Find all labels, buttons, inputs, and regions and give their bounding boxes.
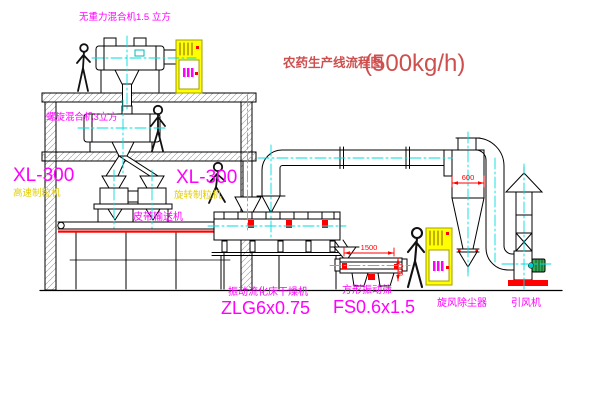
indicator-light (446, 232, 449, 235)
induced-draft-fan (508, 251, 548, 286)
floor-slab-top (42, 93, 256, 102)
mixer-inlet-port (134, 38, 146, 46)
vibration-damper (322, 220, 328, 228)
indicator-light (195, 72, 198, 75)
label-granulator-right-model: XL-300 (176, 167, 237, 188)
dim-cyclone-600: 600 (462, 173, 475, 182)
process-flow-diagram: 无重力混合机1.5 立方 农药生产线流程图 (500kg/h) 螺旋混合机3立方… (0, 0, 600, 403)
label-fan: 引风机 (511, 296, 541, 309)
label-sieve-model: FS0.6x1.5 (333, 297, 415, 317)
fluid-bed-dryer (212, 212, 342, 289)
sieve-vibrator (342, 263, 347, 269)
label-dryer-model: ZLG6x0.75 (221, 298, 310, 318)
sieve-discharge (368, 274, 375, 280)
worker-4 (408, 228, 424, 287)
control-cabinet-ground (426, 228, 452, 285)
label-mid-mixer: 螺旋混合机3立方 (46, 111, 118, 123)
title-capacity: (500kg/h) (364, 50, 465, 77)
label-top-mixer: 无重力混合机1.5 立方 (79, 11, 171, 23)
label-granulator-right-name: 旋转制粒机 (174, 189, 222, 201)
worker-1 (77, 44, 90, 91)
conveyor-roller (58, 222, 64, 228)
mixer-inlet-port (104, 38, 116, 46)
floor-slab-mid (42, 152, 256, 161)
dim-sieve-1500: 1500 (361, 243, 378, 252)
mixer-motor (164, 50, 176, 64)
fan-base (508, 280, 548, 286)
label-cyclone: 旋风除尘器 (437, 296, 487, 309)
conveyor-belt (58, 231, 239, 233)
fan-shaft (528, 263, 534, 269)
indicator-light (446, 266, 449, 269)
vibration-damper (248, 220, 254, 228)
label-granulator-left-model: XL-300 (13, 165, 74, 186)
indicator-light (196, 46, 199, 49)
control-cabinet-top (176, 40, 202, 93)
diagram-canvas: 无重力混合机1.5 立方 农药生产线流程图 (500kg/h) 螺旋混合机3立方… (0, 0, 600, 403)
label-sieve-name: 方形振动筛 (342, 283, 392, 296)
granulator-motor (128, 191, 138, 202)
dim-sieve-600: 600 (398, 264, 405, 276)
cyclone-outlet-neck (458, 138, 476, 150)
vibration-damper (286, 220, 292, 228)
feed-chute (235, 161, 261, 212)
granulator-base (94, 204, 172, 209)
label-dryer-name: 振动流化床干燥机 (228, 285, 308, 298)
dryer-feed-funnel (235, 197, 261, 212)
label-belt-conveyor: 皮带输送机 (133, 210, 183, 223)
dryer-exhaust-duct (257, 147, 446, 211)
label-granulator-left-name: 高速制粒机 (13, 187, 61, 199)
